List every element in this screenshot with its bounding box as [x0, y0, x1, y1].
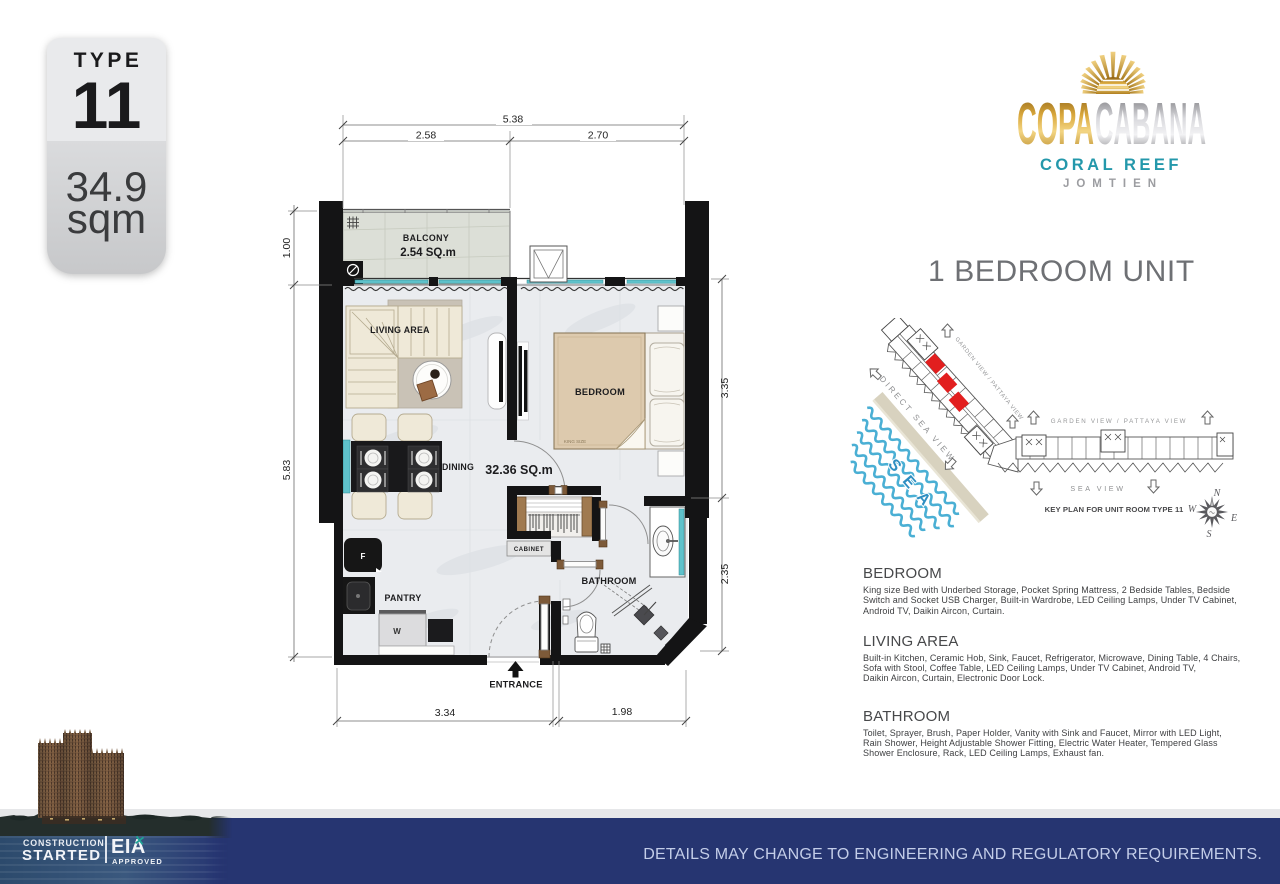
svg-text:LIVING AREA: LIVING AREA	[370, 325, 430, 335]
svg-text:COPA: COPA	[1017, 92, 1094, 158]
svg-text:E: E	[1230, 513, 1237, 524]
svg-text:N: N	[1213, 488, 1222, 499]
svg-text:F: F	[361, 552, 366, 561]
svg-text:CORAL REEF: CORAL REEF	[1040, 156, 1182, 174]
svg-text:1.98: 1.98	[612, 706, 633, 718]
svg-text:3.34: 3.34	[435, 707, 456, 719]
svg-text:CABINET: CABINET	[514, 547, 544, 553]
svg-text:BATHROOM: BATHROOM	[581, 576, 636, 586]
svg-text:W: W	[393, 627, 401, 636]
svg-text:2.58: 2.58	[416, 130, 437, 142]
svg-text:GARDEN VIEW / PATTAYA VIEW: GARDEN VIEW / PATTAYA VIEW	[1051, 418, 1187, 425]
svg-text:PANTRY: PANTRY	[385, 593, 422, 603]
svg-text:SEA VIEW: SEA VIEW	[1070, 484, 1125, 493]
svg-text:KEY PLAN FOR UNIT ROOM TYPE 11: KEY PLAN FOR UNIT ROOM TYPE 11	[1045, 505, 1184, 514]
svg-text:2.70: 2.70	[588, 130, 609, 142]
svg-text:32.36 SQ.m: 32.36 SQ.m	[485, 463, 552, 477]
svg-text:5.38: 5.38	[503, 114, 524, 126]
svg-text:2.54 SQ.m: 2.54 SQ.m	[400, 247, 456, 259]
svg-text:CABANA: CABANA	[1095, 92, 1206, 158]
svg-text:KING SIZE: KING SIZE	[564, 439, 586, 444]
svg-text:BEDROOM: BEDROOM	[575, 387, 625, 397]
svg-text:W: W	[1188, 504, 1198, 515]
svg-text:1.00: 1.00	[281, 238, 293, 259]
svg-text:JOMTIEN: JOMTIEN	[1063, 178, 1163, 190]
svg-text:S: S	[1207, 529, 1212, 540]
svg-text:3.35: 3.35	[719, 378, 731, 399]
svg-text:BALCONY: BALCONY	[403, 233, 449, 243]
svg-text:DINING: DINING	[442, 462, 474, 472]
svg-text:ENTRANCE: ENTRANCE	[489, 680, 542, 690]
svg-text:2.35: 2.35	[719, 564, 731, 585]
svg-text:5.83: 5.83	[281, 460, 293, 481]
